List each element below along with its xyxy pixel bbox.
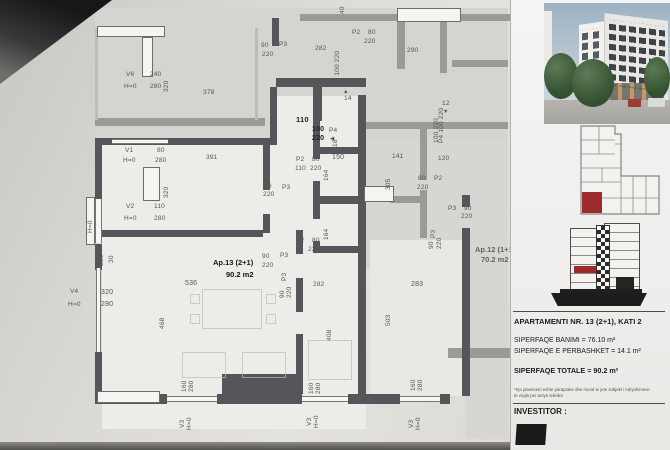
plan-label: P3 <box>279 41 287 49</box>
plan-label: 320 <box>163 187 171 198</box>
plan-label: 536 <box>185 280 197 288</box>
plan-label: 150 <box>332 154 344 162</box>
plan-label: V1 <box>125 147 133 155</box>
plan-label: 391 <box>206 154 217 162</box>
plan-label: 90 <box>261 42 269 50</box>
plan-label: V6 <box>126 71 134 79</box>
plan-label: 90 <box>428 241 436 249</box>
plan-label: 280 <box>101 301 113 309</box>
plan-label: P3 <box>281 273 289 281</box>
plan-label: V2 <box>126 203 134 211</box>
plan-label: V4 <box>70 288 78 296</box>
plan-label: 220 <box>364 38 375 46</box>
plan-label: 240 <box>150 71 161 79</box>
area-totale: SIPERFAQE TOTALE = 90.2 m² <box>514 366 618 375</box>
plan-label: 280 <box>417 380 425 391</box>
plan-label: H=0 <box>68 301 81 309</box>
area-banimi: SIPERFAQE BANIMI = 76.10 m² <box>514 337 615 344</box>
plan-label: 280 <box>155 157 166 165</box>
plan-label: 220 <box>461 213 472 221</box>
plan-label: 290 <box>407 47 418 55</box>
plan-label: 100 <box>312 126 324 134</box>
plan-label: H=0 <box>123 157 136 165</box>
plan-label: 220 <box>312 135 324 143</box>
plan-label: 18 <box>332 139 340 147</box>
plan-label: 220 <box>286 287 294 298</box>
plan-label: 141 <box>392 153 403 161</box>
plan-label: 90 <box>264 183 272 191</box>
plan-label: 110 <box>154 203 165 211</box>
plan-label: 220 <box>263 191 274 199</box>
plan-label: 305 <box>385 179 393 190</box>
plan-label: 320 <box>163 81 171 92</box>
plan-label: 220 <box>417 184 428 192</box>
floor-plan-photo: Ap.13 (2+1) 90.2 m2 Ap.12 (1+1) 70.2 m2 … <box>0 0 670 450</box>
apartment-title: APARTAMENTI NR. 13 (2+1), KATI 2 <box>514 317 642 326</box>
plan-label: 80 <box>157 147 165 155</box>
investor-logo <box>515 424 546 445</box>
plan-label: 220 <box>262 262 273 270</box>
plan-label: 110 <box>296 116 309 124</box>
investor-label: INVESTITOR : <box>514 407 567 416</box>
plan-label: 282 <box>315 45 326 53</box>
plan-label: 468 <box>159 318 167 329</box>
plan-label: 110 <box>295 165 306 173</box>
area-perbashket: SIPERFAQE E PERBASHKET = 14.1 m² <box>514 348 641 355</box>
plan-label: 80 <box>418 175 426 183</box>
disclaimer-note-line1: *Kjo planimetri eshte paraprake dhe mund… <box>514 387 650 392</box>
plan-label: 14 <box>344 95 352 103</box>
plan-label: 280 <box>150 83 161 91</box>
plan-label: P3 <box>448 205 456 213</box>
plan-label: P4 100 220 <box>334 51 342 86</box>
plan-label: P4 <box>329 127 337 135</box>
plan-label: P2 <box>296 156 304 164</box>
plan-label: H=0 <box>124 83 137 91</box>
plan-label: 164 <box>323 170 331 181</box>
divider <box>513 403 665 404</box>
plan-label: 164 <box>323 229 331 240</box>
plan-label: 280 <box>188 381 196 392</box>
plan-label: P2 <box>352 29 360 37</box>
plan-label: 378 <box>203 89 214 97</box>
info-text-block: APARTAMENTI NR. 13 (2+1), KATI 2 SIPERFA… <box>510 0 670 450</box>
plan-label: 80 <box>312 156 320 164</box>
plan-label: P3 <box>280 252 288 260</box>
plan-label: 320 <box>101 289 113 297</box>
plan-label: 282 <box>313 281 324 289</box>
plan-label: 220 <box>262 51 273 59</box>
plan-label: 220 <box>308 246 319 254</box>
divider <box>513 311 665 312</box>
plan-label: 100 220 <box>433 118 441 143</box>
disclaimer-note-line2: te vogla per arsye teknike <box>514 393 563 398</box>
plan-label: 120 <box>438 155 449 163</box>
plan-label: 220 <box>310 165 321 173</box>
plan-label: P3 <box>282 184 290 192</box>
plan-label: H=0 <box>415 417 423 430</box>
plan-label: 30 <box>108 255 116 263</box>
plan-label: P2 <box>434 175 442 183</box>
plan-label: 503 <box>385 315 393 326</box>
plan-label: 408 <box>326 330 334 341</box>
plan-label: P2 <box>296 237 304 245</box>
plan-label: H=0 <box>87 220 95 233</box>
plan-label: 40 <box>339 6 347 14</box>
plan-label: 280 <box>154 215 165 223</box>
plan-label: 80 <box>312 237 320 245</box>
plan-label: 90 <box>464 205 472 213</box>
plan-label: 80 <box>368 29 376 37</box>
plan-label: 280 <box>315 383 323 394</box>
plan-label: 90 <box>262 253 270 261</box>
plan-label: H=0 <box>186 417 194 430</box>
plan-label: H=0 <box>124 215 137 223</box>
plan-label: 280 <box>98 255 106 266</box>
plan-label: H=0 <box>313 415 321 428</box>
plan-label: 283 <box>411 281 423 289</box>
plan-label: 220 <box>436 238 444 249</box>
